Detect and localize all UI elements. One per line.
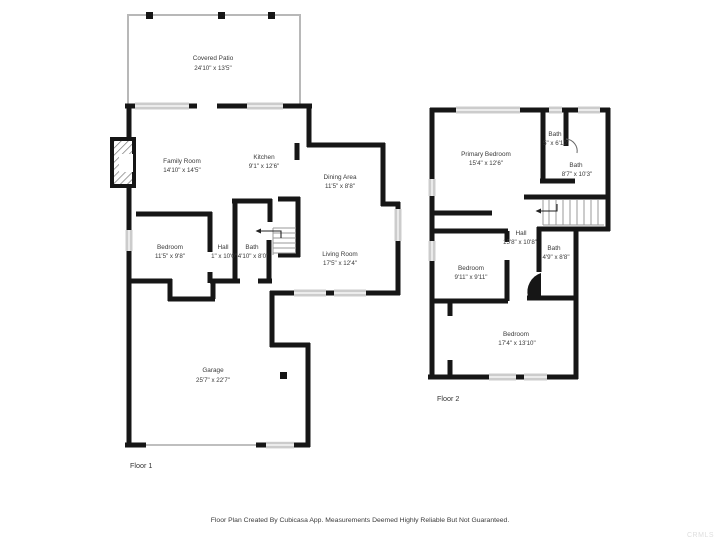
room-dims: 9'11" x 9'11": [454, 274, 487, 281]
room-label: Bedroom: [157, 244, 183, 251]
garage-post: [280, 372, 287, 379]
patio-post: [268, 12, 275, 19]
room-label: Garage: [202, 367, 224, 374]
room-dims: 17'4" x 13'10": [498, 340, 535, 347]
room-label: Primary Bedroom: [461, 151, 511, 158]
room-label: Covered Patio: [193, 55, 234, 62]
fireplace-icon: [112, 139, 134, 186]
room-label: Family Room: [163, 158, 201, 165]
floor-plan-canvas: Covered Patio 24'10" x 13'5" Family Room…: [0, 0, 720, 540]
room-dims: 8'7" x 10'3": [562, 171, 593, 178]
room-dims: 17'5" x 12'4": [323, 260, 357, 267]
water-heater-icon: [527, 273, 541, 297]
room-label: Living Room: [322, 251, 358, 258]
room-label: Dining Area: [323, 174, 356, 181]
watermark-text: CRMLS: [687, 532, 714, 539]
floor2-label: Floor 2: [437, 394, 459, 403]
disclaimer-text: Floor Plan Created By Cubicasa App. Meas…: [211, 517, 510, 524]
room-label: Bath: [548, 131, 562, 138]
room-label: Bath: [547, 245, 561, 252]
floor2-stairs: [536, 200, 605, 225]
floor2-labels: Primary Bedroom 15'4" x 12'6" Bath 5" x …: [454, 131, 592, 347]
room-dims: 5" x 6'10": [543, 140, 569, 147]
floor1-plan: Covered Patio 24'10" x 13'5" Family Room…: [112, 12, 402, 470]
floor2-plan: Primary Bedroom 15'4" x 12'6" Bath 5" x …: [428, 107, 610, 404]
floor1-label: Floor 1: [130, 461, 152, 470]
room-dims: 14'10" x 14'5": [163, 167, 200, 174]
room-dims: 15'4" x 12'6": [469, 160, 503, 167]
patio-door-opening: [197, 101, 217, 111]
room-label: Bath: [569, 162, 583, 169]
room-dims: 1" x 10'0": [211, 253, 237, 260]
room-dims: 24'10" x 13'5": [194, 65, 231, 72]
room-label: Kitchen: [253, 154, 275, 161]
room-dims: 11'5" x 9'8": [155, 253, 185, 260]
room-label: Bedroom: [458, 265, 484, 272]
room-label: Hall: [515, 230, 526, 237]
patio-post: [218, 12, 225, 19]
floor-plan-page: Covered Patio 24'10" x 13'5" Family Room…: [0, 0, 720, 540]
room-dims: 4'9" x 8'8": [542, 254, 569, 261]
room-label: Bath: [245, 244, 259, 251]
room-label: Bedroom: [503, 331, 529, 338]
room-dims: 9'1" x 12'6": [249, 163, 280, 170]
floor1-stairs: [256, 228, 297, 255]
room-dims: 11'5" x 8'8": [325, 183, 355, 190]
room-label: Hall: [217, 244, 228, 251]
room-dims: 15'8" x 10'8": [503, 239, 537, 246]
room-dims: 25'7" x 22'7": [196, 377, 230, 384]
room-dims: 4'10" x 8'0": [238, 253, 269, 260]
stairs-direction-arrow: [536, 204, 558, 214]
patio-post: [146, 12, 153, 19]
